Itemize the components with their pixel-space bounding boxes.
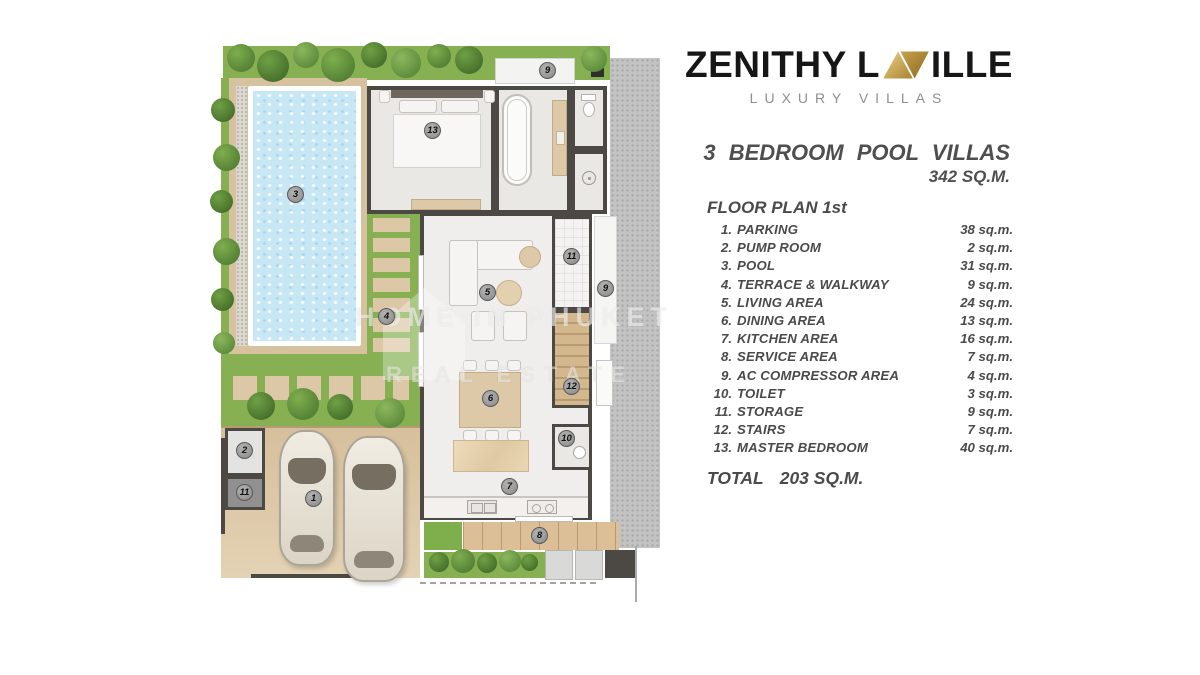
legend-num: 5. [707,295,732,310]
legend-row: 13.MASTER BEDROOM40 sq.m. [707,440,1013,458]
legend-name: KITCHEN AREA [737,331,960,346]
legend-num: 3. [707,258,732,273]
legend-area: 2 sq.m. [968,240,1013,255]
paver [545,550,573,580]
tree [257,50,289,82]
lawn-patch [424,522,462,550]
tree [211,288,234,311]
legend-row: 5.LIVING AREA24 sq.m. [707,295,1013,313]
vanity [552,100,567,176]
legend-row: 8.SERVICE AREA7 sq.m. [707,349,1013,367]
stove-icon [527,500,557,514]
legend-row: 3.POOL31 sq.m. [707,258,1013,276]
tree [213,238,240,265]
legend-area: 7 sq.m. [968,422,1013,437]
legend-area: 24 sq.m. [960,295,1013,310]
plan-label-9b: 9 [597,280,614,297]
legend-area: 4 sq.m. [968,368,1013,383]
bush [429,552,449,572]
legend-row: 6.DINING AREA13 sq.m. [707,313,1013,331]
legend-name: DINING AREA [737,313,960,328]
legend-row: 2.PUMP ROOM2 sq.m. [707,240,1013,258]
palm-tree [375,398,405,428]
brand-tagline: LUXURY VILLAS [685,90,1013,106]
tree [391,48,421,78]
legend-row: 11.STORAGE9 sq.m. [707,404,1013,422]
plan-label-9: 9 [539,62,556,79]
plan-label-1: 1 [305,490,322,507]
toilet-icon [583,102,595,117]
plan-label-3: 3 [287,186,304,203]
legend-num: 8. [707,349,732,364]
car-rear-window [290,535,324,552]
watermark-line2: REAL ESTATE [355,362,665,388]
plan-label-8: 8 [531,527,548,544]
legend-num: 10. [707,386,732,401]
legend-num: 6. [707,313,732,328]
brand-triangles-icon [882,44,929,86]
room-legend: 1.PARKING38 sq.m. 2.PUMP ROOM2 sq.m. 3.P… [707,222,1013,458]
tree [227,44,255,72]
legend-area: 38 sq.m. [960,222,1013,237]
brand-name-right: ILLE [931,44,1013,86]
legend-row: 4.TERRACE & WALKWAY9 sq.m. [707,277,1013,295]
car-windshield [288,458,326,484]
pebble-strip [236,86,247,346]
legend-num: 11. [707,404,732,419]
burner [545,504,554,513]
nightstand [379,90,390,103]
watermark-line1: HOME IN PHUKET [355,302,665,333]
legend-num: 4. [707,277,732,292]
tree [361,42,387,68]
plan-label-5: 5 [479,284,496,301]
paver [575,550,603,580]
plan-label-4: 4 [378,308,395,325]
legend-name: STORAGE [737,404,968,419]
legend-area: 40 sq.m. [960,440,1013,455]
legend-name: AC COMPRESSOR AREA [737,368,968,383]
kitchen-island [453,440,529,472]
shower-icon [582,171,596,185]
legend-area: 9 sq.m. [968,277,1013,292]
pillow [399,100,437,113]
legend-name: PARKING [737,222,960,237]
palm-tree [287,388,319,420]
legend-name: SERVICE AREA [737,349,968,364]
brand-name-left: ZENITHY L [685,44,880,86]
toilet-tank [581,94,596,101]
round-sink-icon [573,446,586,459]
legend-row: 10.TOILET3 sq.m. [707,386,1013,404]
burner [532,504,541,513]
side-table [519,246,541,268]
sink-basin [484,503,496,513]
pool-water [253,91,356,341]
bedroom-bench [411,199,481,210]
legend-name: TERRACE & WALKWAY [737,277,968,292]
plan-label-10: 10 [558,430,575,447]
bed-headboard [391,90,483,98]
brand-logo: ZENITHY L ILLE [685,42,1013,88]
legend-area: 13 sq.m. [960,313,1013,328]
bush [477,553,497,573]
legend-num: 13. [707,440,732,455]
bathtub [502,94,532,186]
legend-name: TOILET [737,386,968,401]
sink-icon [467,500,497,514]
bathtub-inner [507,99,527,181]
legend-num: 7. [707,331,732,346]
legend-num: 12. [707,422,732,437]
legend-num: 2. [707,240,732,255]
plan-label-13: 13 [424,122,441,139]
boundary-line [635,546,637,602]
total-value: 203 SQ.M. [780,468,864,488]
tree [213,144,240,171]
tree [581,46,607,72]
tree [213,332,235,354]
basin [556,131,565,145]
legend-row: 7.KITCHEN AREA16 sq.m. [707,331,1013,349]
tree [293,42,319,68]
bush [521,554,538,571]
car-rear-window [354,551,394,568]
toilet-room [552,424,592,470]
pool [248,86,361,346]
floor-plan: HOME IN PHUKET REAL ESTATE 1 2 3 4 5 6 7… [215,40,665,600]
legend-row: 1.PARKING38 sq.m. [707,222,1013,240]
tree [211,98,235,122]
plan-label-2: 2 [236,442,253,459]
nightstand [484,90,495,103]
legend-name: LIVING AREA [737,295,960,310]
legend-name: POOL [737,258,960,273]
bed [393,114,481,168]
legend-name: STAIRS [737,422,968,437]
bush [499,550,521,572]
sofa-return [449,240,478,306]
plan-label-11b: 11 [236,484,253,501]
palm-tree [327,394,353,420]
legend-num: 1. [707,222,732,237]
villa-title: 3 BEDROOM POOL VILLAS [698,140,1010,166]
plan-label-7: 7 [501,478,518,495]
floor-plan-heading: FLOOR PLAN 1st [707,198,847,218]
total-label: TOTAL [707,468,764,488]
legend-row: 12.STAIRS7 sq.m. [707,422,1013,440]
plan-label-11: 11 [563,248,580,265]
villa-total-area: 342 SQ.M. [698,167,1010,187]
legend-name: MASTER BEDROOM [737,440,960,455]
car [343,436,405,582]
legend-area: 31 sq.m. [960,258,1013,273]
tree [455,46,483,74]
kitchen-counter [424,496,588,518]
wall-block [605,550,635,578]
ac-area-top [495,58,575,84]
legend-name: PUMP ROOM [737,240,968,255]
property-dashed-line [420,582,596,584]
legend-area: 3 sq.m. [968,386,1013,401]
shower-drain [588,177,591,180]
window [515,516,573,522]
page: HOME IN PHUKET REAL ESTATE 1 2 3 4 5 6 7… [0,0,1200,675]
car-windshield [352,464,396,490]
plan-label-12: 12 [563,378,580,395]
tree [321,48,355,82]
tree [210,190,233,213]
total-area: TOTAL203 SQ.M. [707,468,863,489]
palm-tree [247,392,275,420]
legend-area: 9 sq.m. [968,404,1013,419]
legend-num: 9. [707,368,732,383]
bush [451,549,475,573]
tree [427,44,451,68]
legend-row: 9.AC COMPRESSOR AREA4 sq.m. [707,368,1013,386]
legend-area: 16 sq.m. [960,331,1013,346]
plan-label-6: 6 [482,390,499,407]
sink-basin [471,503,483,513]
pillow [441,100,479,113]
legend-area: 7 sq.m. [968,349,1013,364]
